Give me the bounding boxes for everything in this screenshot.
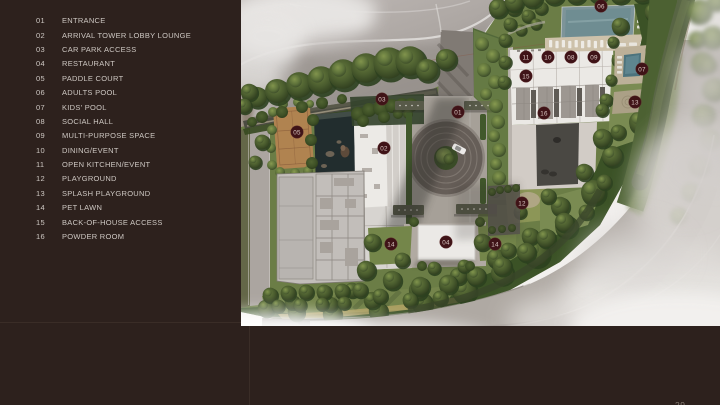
svg-text:01: 01 (454, 109, 462, 116)
svg-text:07: 07 (638, 66, 646, 73)
svg-text:03: 03 (378, 96, 386, 103)
svg-text:10: 10 (544, 54, 552, 61)
svg-text:14: 14 (387, 241, 395, 248)
svg-text:13: 13 (631, 99, 639, 106)
svg-text:05: 05 (293, 129, 301, 136)
svg-text:14: 14 (491, 241, 499, 248)
svg-text:09: 09 (590, 54, 598, 61)
svg-text:15: 15 (522, 73, 530, 80)
svg-text:12: 12 (518, 200, 526, 207)
svg-text:04: 04 (442, 239, 450, 246)
svg-text:11: 11 (522, 54, 529, 61)
svg-text:16: 16 (540, 110, 548, 117)
svg-text:08: 08 (567, 54, 575, 61)
svg-text:06: 06 (597, 3, 605, 10)
svg-text:02: 02 (380, 145, 388, 152)
